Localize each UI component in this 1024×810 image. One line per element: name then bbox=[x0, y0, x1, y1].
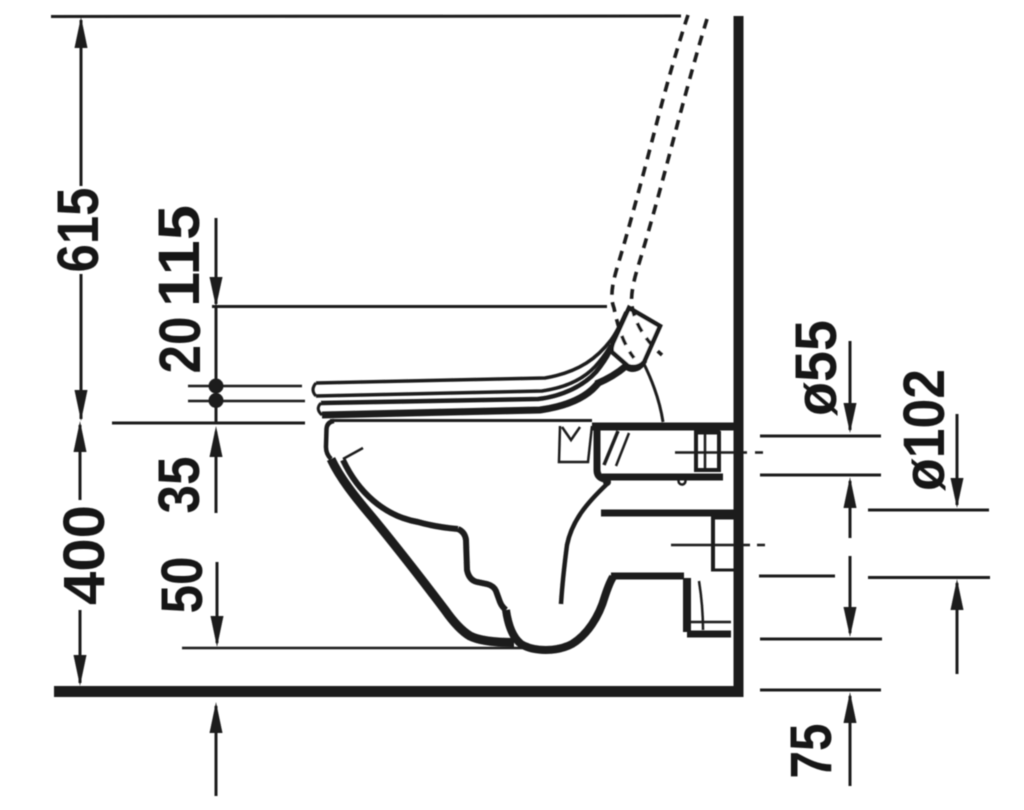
svg-text:35: 35 bbox=[147, 457, 212, 514]
svg-text:115: 115 bbox=[147, 205, 212, 307]
svg-text:50: 50 bbox=[150, 557, 215, 614]
svg-text:615: 615 bbox=[46, 188, 111, 273]
svg-text:ø55: ø55 bbox=[784, 320, 849, 416]
svg-text:20: 20 bbox=[148, 317, 213, 374]
svg-text:75: 75 bbox=[779, 724, 844, 779]
svg-text:ø102: ø102 bbox=[892, 369, 957, 491]
svg-text:400: 400 bbox=[52, 505, 117, 605]
